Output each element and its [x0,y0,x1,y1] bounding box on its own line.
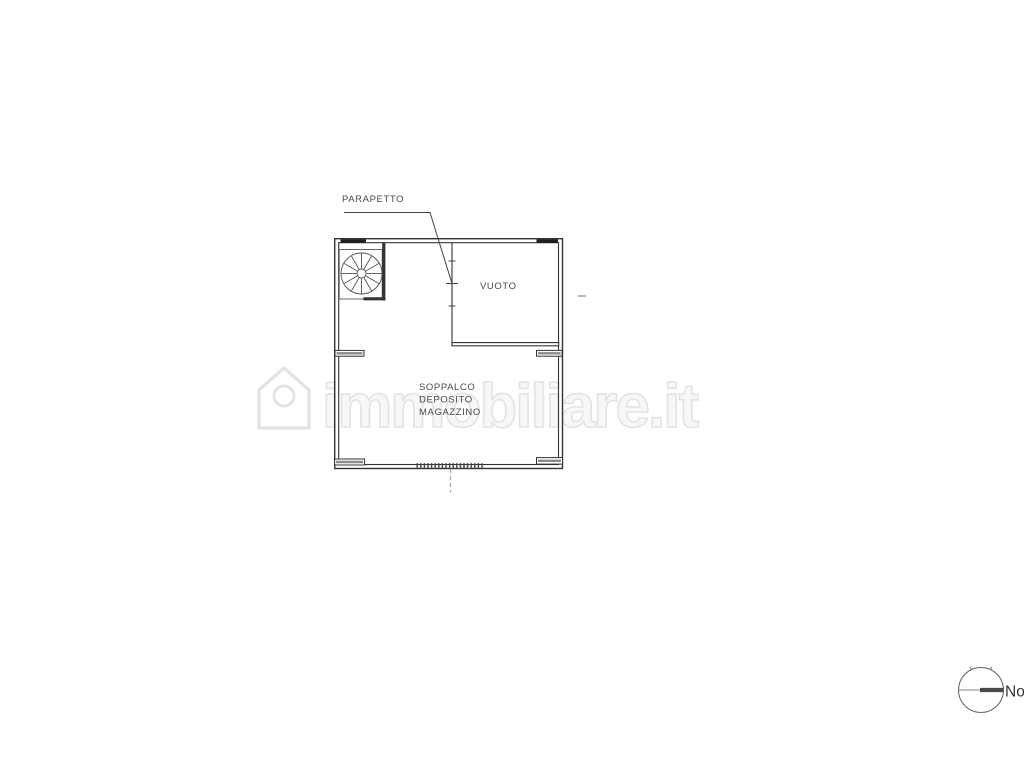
vuoto-railing [446,243,458,346]
parapetto-label: PARAPETTO [342,194,404,205]
window-symbol [537,350,563,356]
window-symbol [335,459,365,465]
compass-tick [991,667,992,670]
room-label-line2: DEPOSITO [419,395,473,406]
compass-tick [970,667,971,670]
north-label: Nord [1005,684,1024,701]
floor-plan-svg: PARAPETTO VUOTO SOPPALCO DEPOSITO MAGAZZ… [0,0,1024,768]
window-symbol [335,350,364,356]
parapetto-leader-line [344,213,452,284]
room-label-line1: SOPPALCO [419,382,475,393]
compass: Nord [959,667,1024,713]
spiral-staircase [341,253,382,294]
vuoto-label: VUOTO [480,281,517,292]
floorplan-page: immobiliare.it [0,0,1024,768]
room-label: SOPPALCO DEPOSITO MAGAZZINO [419,382,481,418]
vuoto-room-walls [452,343,559,346]
window-symbol [537,458,563,465]
stair-enclosure-walls [339,243,385,301]
room-label-line3: MAGAZZINO [419,407,481,418]
